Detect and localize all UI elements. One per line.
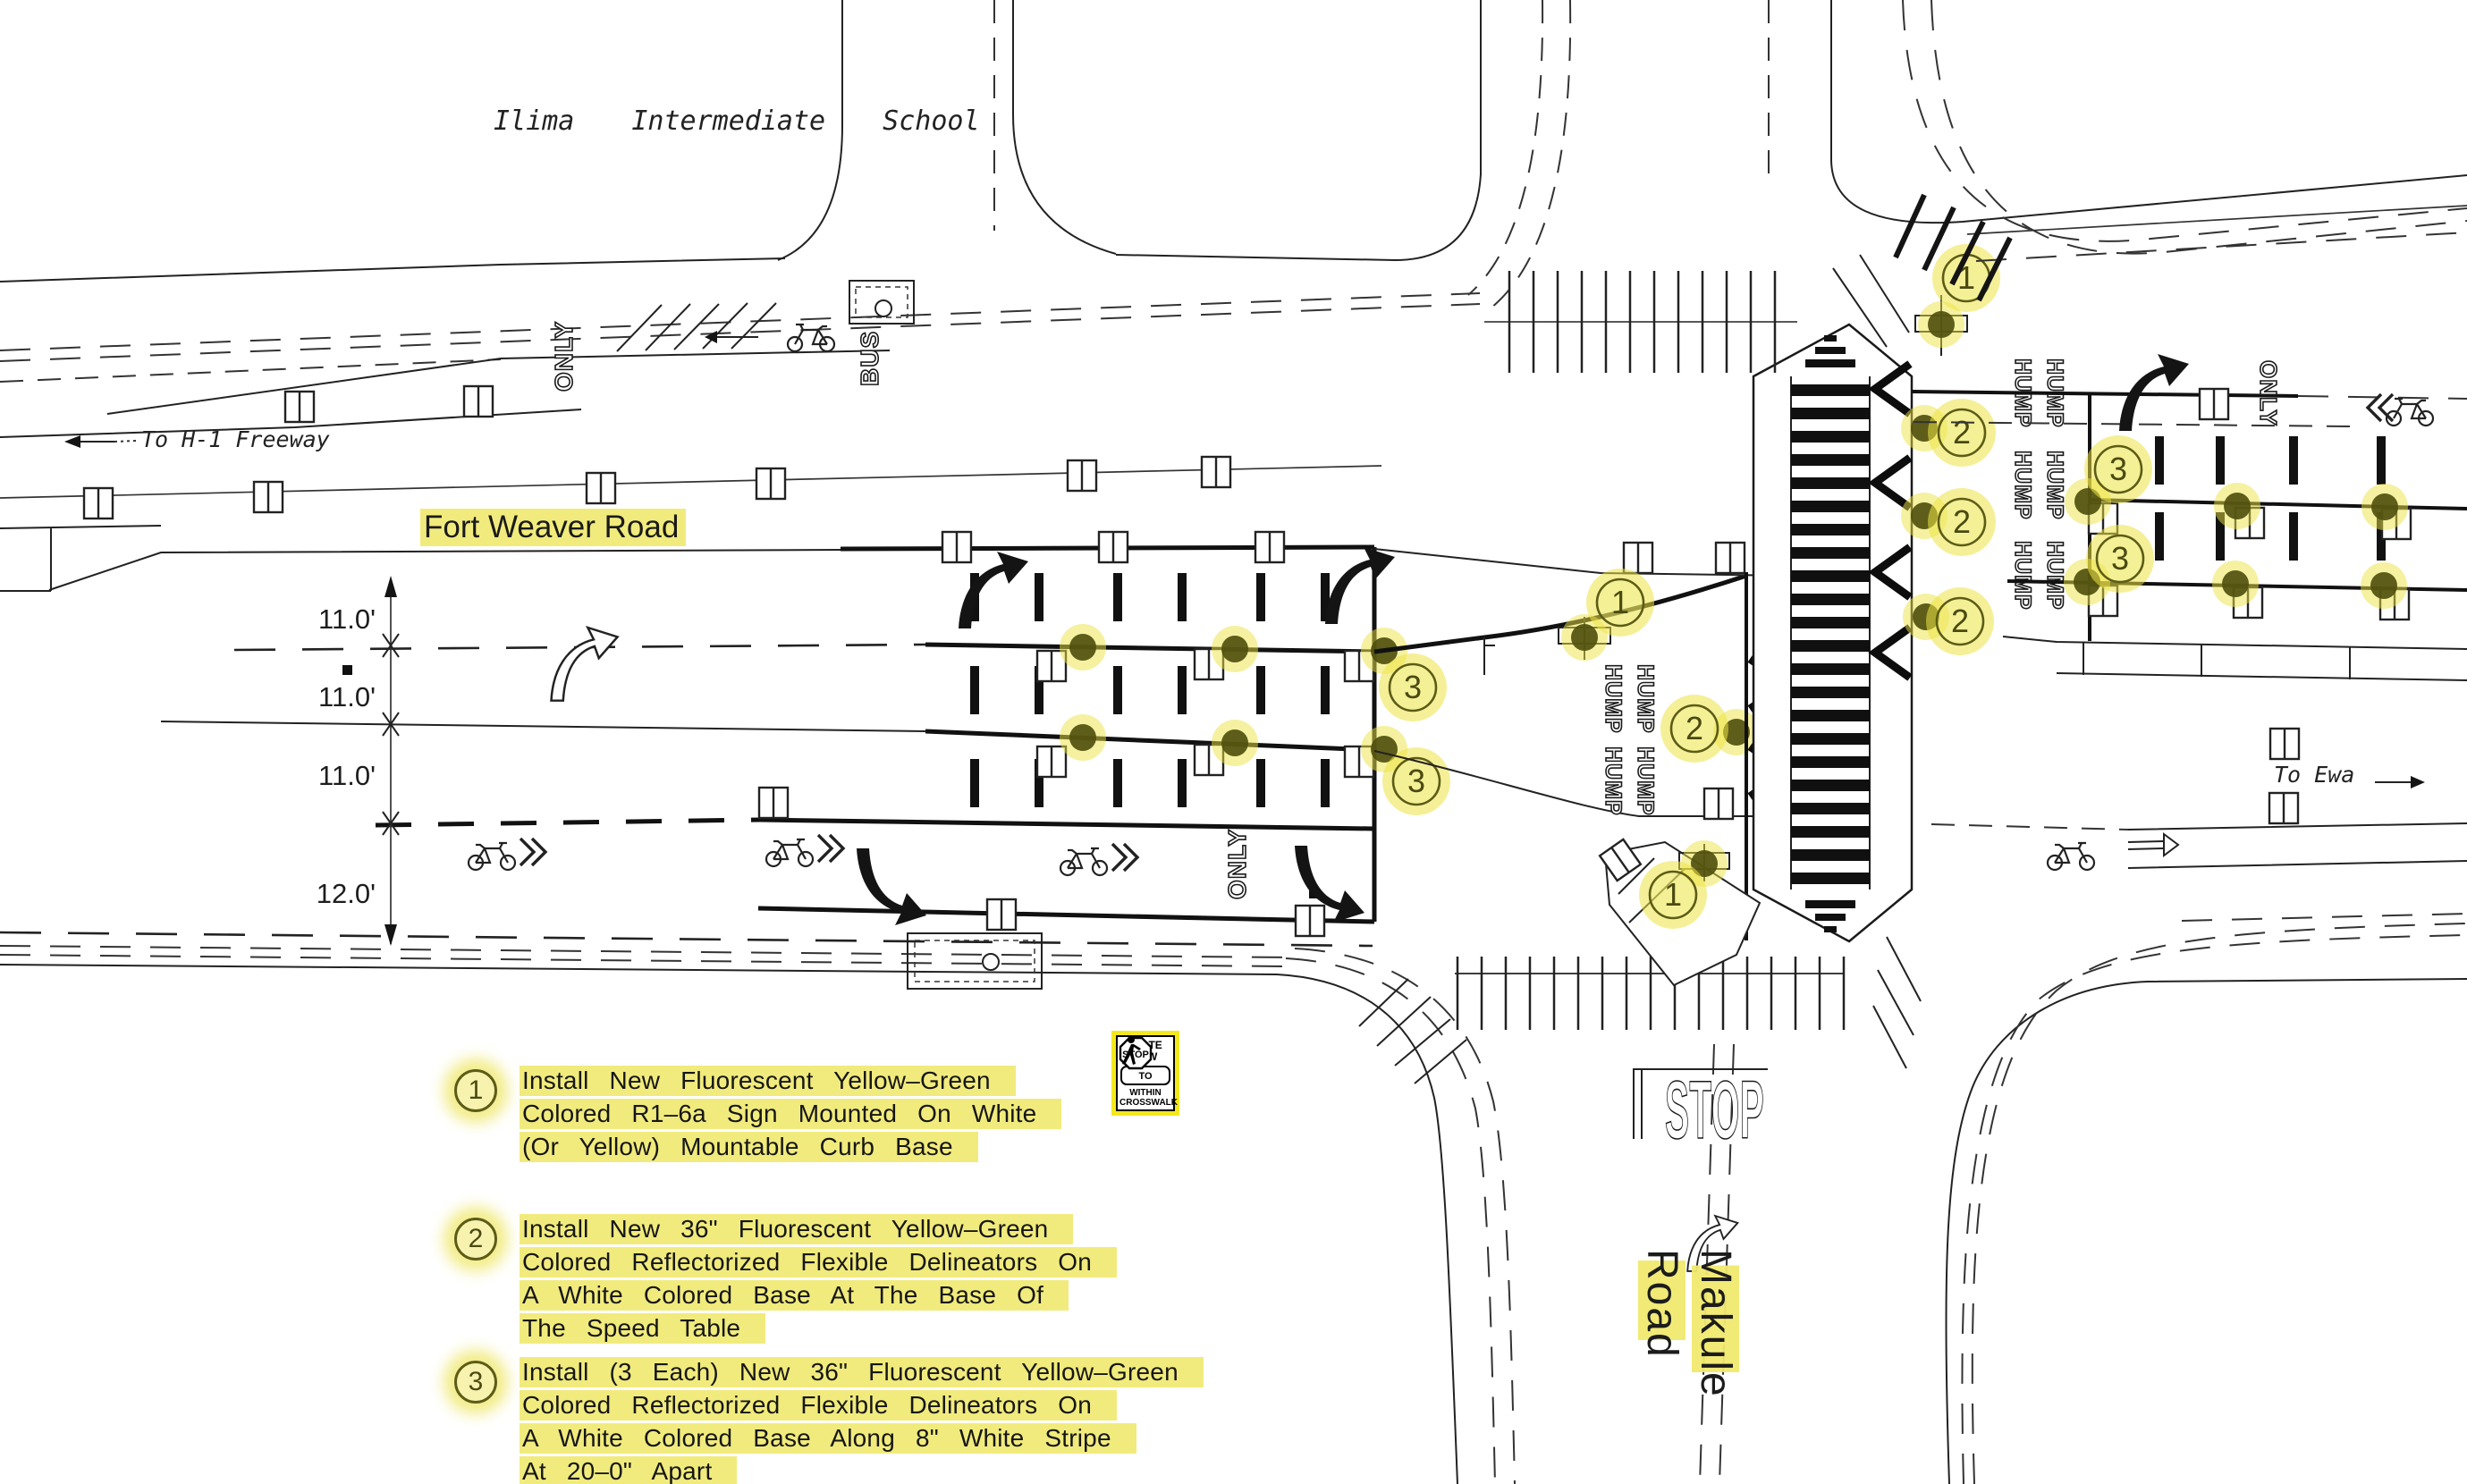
note-1-line: Install New Fluorescent Yellow–Green bbox=[520, 1066, 1016, 1096]
turn-arrow-icon bbox=[857, 848, 926, 925]
note-2-line: The Speed Table bbox=[520, 1313, 765, 1344]
svg-text:1: 1 bbox=[1611, 584, 1629, 620]
lane-width-label-3: 11.0' bbox=[318, 760, 376, 791]
sign-to-text: TO bbox=[1122, 1071, 1169, 1082]
callout-2: 2 bbox=[1928, 488, 1996, 556]
note-1-line: Colored R1–6a Sign Mounted On White bbox=[520, 1099, 1061, 1129]
north-leg-crosswalk bbox=[1484, 271, 1797, 373]
to-h1-freeway-label: To H-1 Freeway bbox=[141, 426, 330, 452]
callout-3: 3 bbox=[2084, 435, 2152, 503]
pavement-text-stop: STOP bbox=[1665, 1065, 1764, 1156]
pavement-text-hump: HUMP bbox=[2010, 541, 2035, 611]
callout-2: 2 bbox=[1928, 399, 1996, 467]
note-1-number: 1 bbox=[454, 1069, 497, 1112]
note-2-line: Install New 36" Fluorescent Yellow–Green bbox=[520, 1214, 1073, 1244]
pavement-text-hump: HUMP bbox=[1601, 664, 1626, 734]
pavement-text-only-westbound-east: ONLY bbox=[2255, 360, 2282, 426]
lane-width-label-4: 12.0' bbox=[317, 878, 376, 909]
svg-text:3: 3 bbox=[2111, 540, 2129, 577]
lane-width-label-2: 11.0' bbox=[318, 681, 376, 712]
sign-crosswalk-text: CROSSWALK bbox=[1119, 1098, 1178, 1108]
makule-road-label: Makule Road bbox=[1635, 1247, 1742, 1400]
bike-lane-symbol-westbound-east bbox=[2387, 399, 2433, 426]
pavement-text-hump: HUMP bbox=[1601, 746, 1626, 816]
intersection-zone: 1 HUMP HUMP HUMP HUMP 2 bbox=[1374, 244, 2067, 941]
bike-lane-symbol-westbound bbox=[705, 325, 834, 351]
lane-dimension-stack: 11.0' 11.0' 11.0' 12.0' bbox=[317, 576, 399, 946]
note-3-line: Colored Reflectorized Flexible Delineato… bbox=[520, 1390, 1117, 1421]
pavement-text-bus: BUS bbox=[856, 331, 883, 386]
callout-3: 3 bbox=[1379, 653, 1447, 721]
svg-text:1: 1 bbox=[1664, 876, 1682, 913]
note-2: 2 Install New 36" Fluorescent Yellow–Gre… bbox=[454, 1212, 1259, 1345]
hollow-arrow-icon bbox=[552, 628, 618, 701]
fort-weaver-road-label: Fort Weaver Road bbox=[420, 510, 686, 545]
svg-text:3: 3 bbox=[2109, 451, 2127, 487]
pavement-text-hump: HUMP bbox=[1633, 746, 1658, 816]
callout-2: 2 bbox=[1926, 587, 1994, 655]
note-3-line: A White Colored Base Along 8" White Stri… bbox=[520, 1423, 1136, 1454]
callout-3: 3 bbox=[1382, 747, 1450, 815]
r1-6a-sign-graphic: STATE LAW STOP TO WITHIN CROSSWALK bbox=[1111, 1031, 1179, 1116]
r1-6a-sign-marker-west: 1 bbox=[1559, 569, 1654, 661]
median-hatch bbox=[617, 303, 776, 351]
to-h1-arrow-icon bbox=[64, 435, 136, 448]
note-3-number: 3 bbox=[454, 1361, 497, 1404]
note-3: 3 Install (3 Each) New 36" Fluorescent Y… bbox=[454, 1355, 1259, 1484]
traffic-plan-sheet: ONLY BUS 11.0' 11.0' 11.0' 1 bbox=[0, 0, 2467, 1484]
to-ewa-arrow-icon bbox=[2375, 776, 2425, 788]
svg-text:2: 2 bbox=[1953, 414, 1971, 451]
note-2-line: Colored Reflectorized Flexible Delineato… bbox=[520, 1247, 1117, 1277]
svg-text:3: 3 bbox=[1404, 669, 1422, 705]
thin-lane-arrow bbox=[2128, 834, 2178, 856]
pavement-text-hump: HUMP bbox=[2042, 541, 2067, 611]
pavement-text-hump: HUMP bbox=[2010, 451, 2035, 520]
makule-crosswalk bbox=[1455, 957, 1844, 1030]
svg-text:2: 2 bbox=[1686, 710, 1703, 746]
pavement-text-only-eastbound: ONLY bbox=[1223, 829, 1251, 899]
to-ewa-label: To Ewa bbox=[2274, 762, 2354, 788]
school-driveway bbox=[778, 0, 1481, 324]
raised-crosswalk-speed-table bbox=[1753, 325, 1912, 941]
pavement-text-hump: HUMP bbox=[2042, 451, 2067, 520]
svg-text:3: 3 bbox=[1407, 763, 1425, 799]
note-3-line: Install (3 Each) New 36" Fluorescent Yel… bbox=[520, 1357, 1204, 1387]
pavement-text-only-westbound: ONLY bbox=[550, 321, 578, 392]
note-2-line: A White Colored Base At The Base Of bbox=[520, 1280, 1069, 1311]
turn-arrow-icon bbox=[1325, 547, 1395, 624]
channelization-island: 1 bbox=[1600, 839, 1760, 985]
turn-arrow-icon bbox=[2119, 354, 2189, 431]
pavement-text-hump: HUMP bbox=[1633, 664, 1658, 734]
note-1-line: (Or Yellow) Mountable Curb Base bbox=[520, 1132, 978, 1162]
school-label: Ilima Intermediate School bbox=[494, 105, 980, 137]
sign-within-text: WITHIN bbox=[1129, 1088, 1162, 1098]
callout-3: 3 bbox=[2086, 525, 2154, 593]
bike-lane-symbol-eastbound bbox=[469, 835, 1137, 875]
note-3-line: At 20–0" Apart bbox=[520, 1456, 737, 1484]
bike-lane-symbol-eastbound-east bbox=[2048, 843, 2094, 870]
lane-width-label-1: 11.0' bbox=[318, 603, 376, 635]
pedestrian-icon bbox=[1116, 1035, 1145, 1067]
note-2-number: 2 bbox=[454, 1218, 497, 1261]
svg-text:2: 2 bbox=[1953, 503, 1971, 540]
eastbound-lane-lines bbox=[49, 547, 1374, 922]
svg-text:2: 2 bbox=[1951, 603, 1969, 639]
